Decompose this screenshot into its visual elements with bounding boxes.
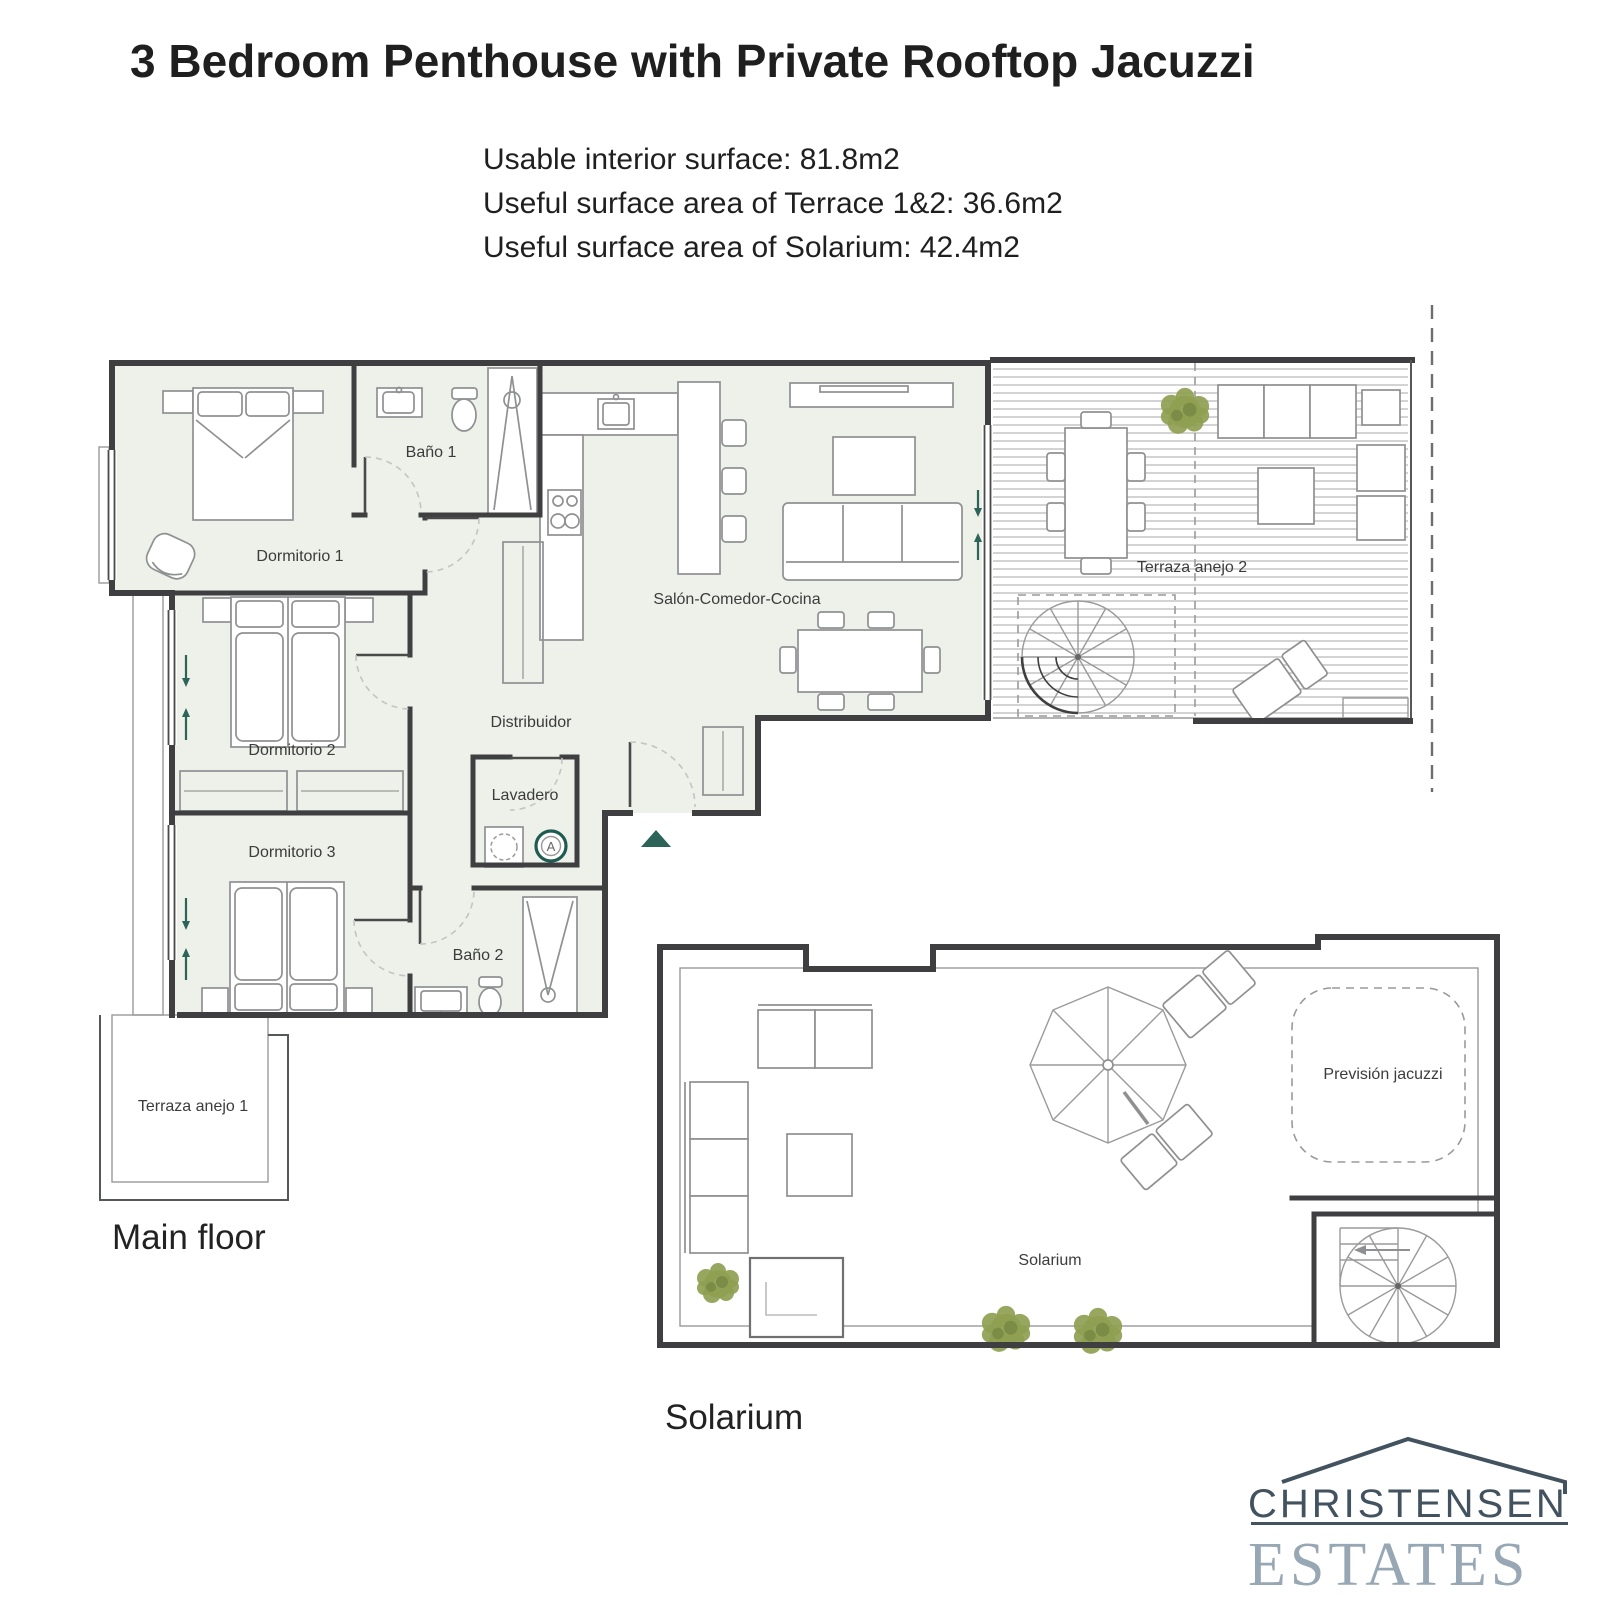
stair-enclosure-floor — [1316, 1214, 1497, 1345]
entrance-arrow — [641, 830, 671, 847]
label-dormitorio1: Dormitorio 1 — [256, 548, 343, 565]
solarium-lounger-2 — [1120, 1103, 1213, 1190]
solarium-caption: Solarium — [665, 1398, 803, 1438]
label-dormitorio3: Dormitorio 3 — [248, 844, 335, 861]
label-solarium: Solarium — [1018, 1252, 1081, 1269]
label-bano1: Baño 1 — [406, 444, 457, 461]
logo-brand-name: CHRISTENSEN — [1248, 1482, 1578, 1527]
solarium-plan: Solarium Previsión jacuzzi — [660, 937, 1497, 1354]
label-salon: Salón-Comedor-Cocina — [653, 591, 820, 608]
label-terraza1: Terraza anejo 1 — [138, 1098, 248, 1115]
logo-divider — [1251, 1522, 1568, 1525]
label-distribuidor: Distribuidor — [491, 714, 573, 731]
main-floor-caption: Main floor — [112, 1218, 266, 1258]
umbrella — [1030, 987, 1186, 1143]
balcony-strip-deck — [133, 595, 163, 1015]
floorplan-drawing: A — [0, 0, 1600, 1600]
label-prevision-jacuzzi: Previsión jacuzzi — [1323, 1066, 1442, 1083]
label-dormitorio2: Dormitorio 2 — [248, 742, 335, 759]
solarium-spiral-stair — [1340, 1228, 1456, 1344]
logo-brand-subtitle: ESTATES — [1248, 1530, 1578, 1600]
floorplan-page: 3 Bedroom Penthouse with Private Rooftop… — [0, 0, 1600, 1600]
label-bano2: Baño 2 — [453, 947, 504, 964]
label-terraza2: Terraza anejo 2 — [1137, 559, 1247, 576]
solarium-lounger-1 — [1162, 950, 1256, 1039]
label-lavadero: Lavadero — [492, 787, 559, 804]
appliance-a-marker: A — [547, 839, 556, 854]
terrace2-spiral-stair — [1022, 601, 1134, 713]
solarium-plant — [697, 1263, 739, 1303]
